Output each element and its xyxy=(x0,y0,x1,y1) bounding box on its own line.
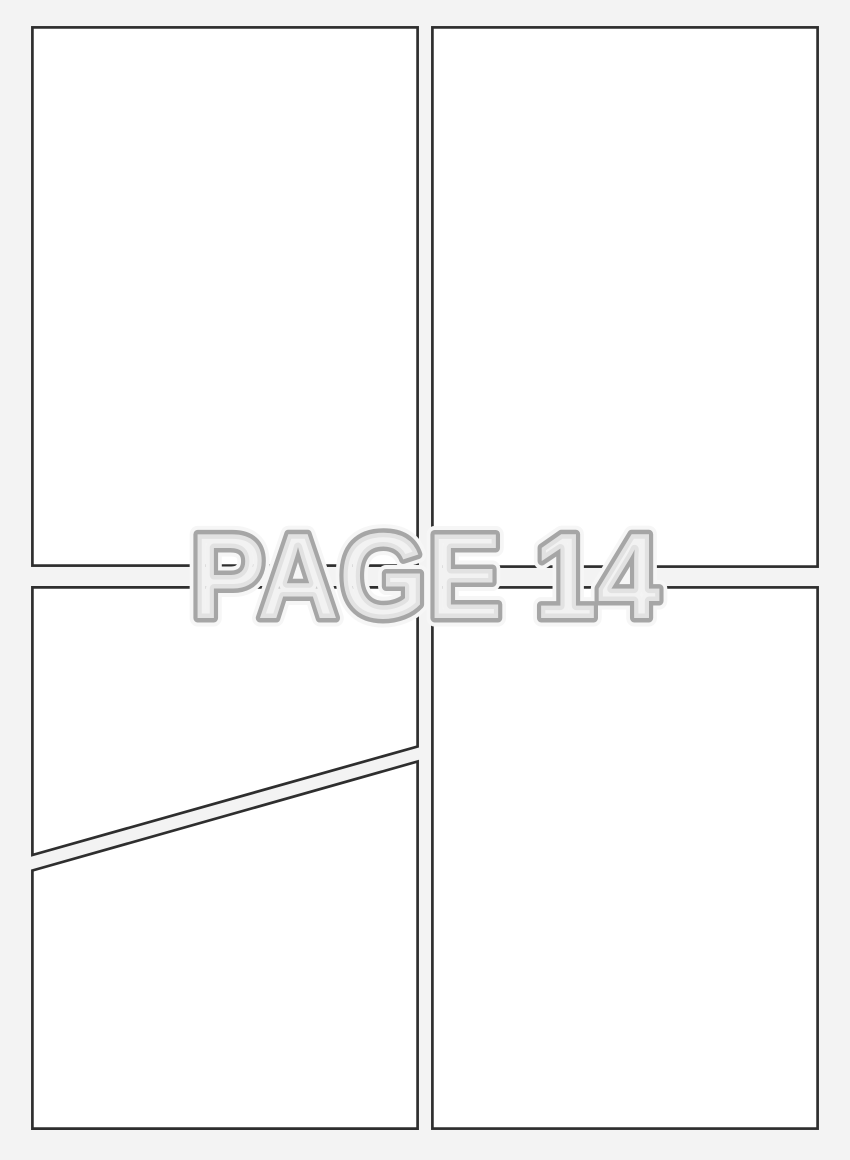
comic-page-template: PAGE 14 PAGE 14 xyxy=(0,0,850,1160)
comic-page-svg: PAGE 14 PAGE 14 xyxy=(0,0,850,1160)
panel-bottom-right xyxy=(432,587,817,1128)
panel-top-left xyxy=(32,27,417,565)
panel-top-right xyxy=(432,27,817,566)
page-number-watermark: PAGE 14 xyxy=(190,508,660,644)
